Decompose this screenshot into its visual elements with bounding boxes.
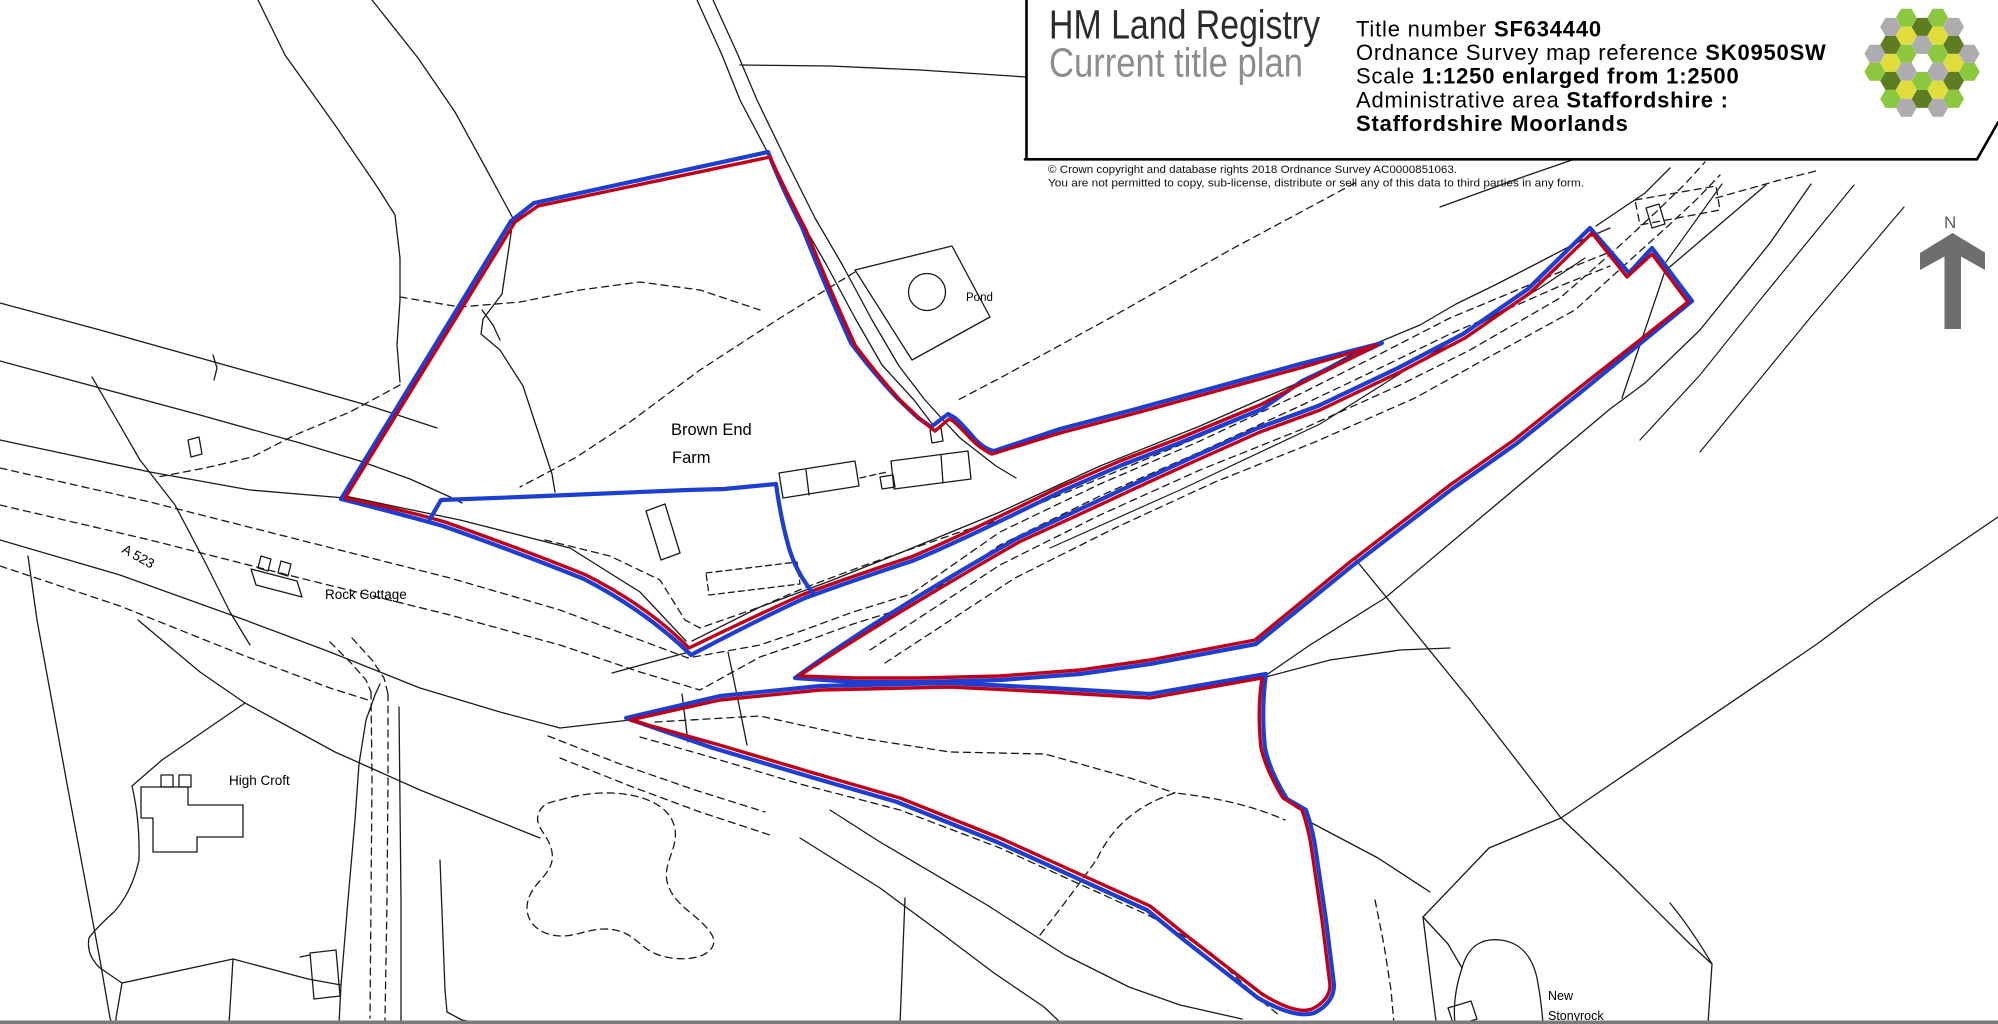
svg-text:Brown End: Brown End <box>671 421 752 439</box>
svg-text:Staffordshire Moorlands: Staffordshire Moorlands <box>1356 111 1629 136</box>
svg-text:New: New <box>1548 989 1574 1003</box>
svg-text:High Croft: High Croft <box>229 773 290 788</box>
svg-text:N: N <box>1944 213 1956 232</box>
svg-text:Farm: Farm <box>672 449 711 467</box>
svg-text:Administrative area Staffordsh: Administrative area Staffordshire : <box>1356 87 1729 112</box>
svg-text:Current title plan: Current title plan <box>1049 40 1303 86</box>
svg-text:You are not permitted to copy,: You are not permitted to copy, sub-licen… <box>1048 178 1584 190</box>
svg-text:Title number SF634440: Title number SF634440 <box>1356 17 1602 42</box>
svg-text:A 523: A 523 <box>120 542 157 572</box>
svg-text:Ordnance Survey map reference: Ordnance Survey map reference SK0950SW <box>1356 40 1827 65</box>
svg-text:Pond: Pond <box>966 292 993 304</box>
svg-text:© Crown copyright and database: © Crown copyright and database rights 20… <box>1048 164 1457 176</box>
svg-text:Rock Cottage: Rock Cottage <box>325 587 407 602</box>
svg-text:Scale 1:1250 enlarged from 1:2: Scale 1:1250 enlarged from 1:2500 <box>1356 64 1739 89</box>
